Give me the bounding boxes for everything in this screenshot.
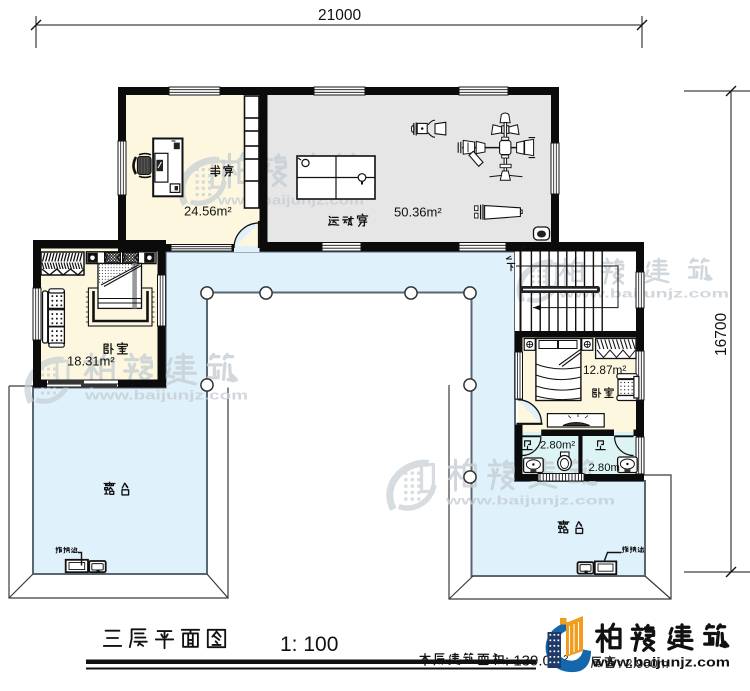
svg-text:24.56m²: 24.56m² [184,204,232,219]
svg-text:21000: 21000 [318,7,361,24]
svg-text:18.31m²: 18.31m² [67,354,115,369]
svg-text:12.87m²: 12.87m² [583,363,626,377]
svg-text:www.baijunjz.com: www.baijunjz.com [84,387,248,402]
svg-text:50.36m²: 50.36m² [394,205,442,220]
svg-text:2.80m: 2.80m [589,462,620,474]
svg-text:www.baijunjz.com: www.baijunjz.com [591,655,730,670]
svg-text:16700: 16700 [713,313,730,356]
svg-text:2.80m²: 2.80m² [540,440,575,452]
svg-text:1: 100: 1: 100 [280,633,338,656]
svg-text:www.baijunjz.com: www.baijunjz.com [444,494,615,508]
